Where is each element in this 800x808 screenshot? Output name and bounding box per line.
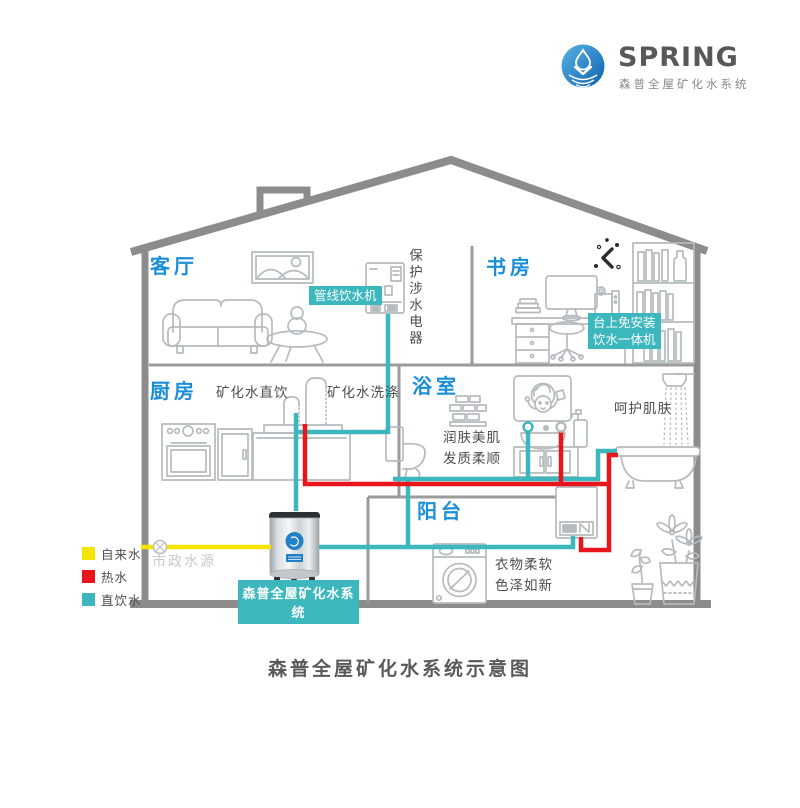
brand-wordmark: SPRING — [618, 42, 739, 73]
bathtub — [615, 447, 700, 488]
label-skin-line2: 发质柔顺 — [443, 449, 501, 470]
room-label-bath: 浴室 — [412, 370, 460, 399]
chip-countertop-line1: 台上免安装 — [593, 314, 656, 331]
legend-swatch-hot — [82, 570, 95, 583]
legend-label-hot: 热水 — [101, 567, 128, 586]
label-mineral-washing: 矿化水洗涤 — [327, 383, 400, 404]
office-chair — [550, 322, 584, 361]
label-laundry: 衣物柔软 色泽如新 — [495, 555, 553, 597]
label-skin-care: 润肤美肌 发质柔顺 — [443, 428, 501, 470]
legend-label-tap: 自来水 — [101, 544, 142, 563]
room-label-study: 书房 — [486, 251, 534, 280]
toilet — [386, 427, 425, 478]
label-laundry-line1: 衣物柔软 — [495, 555, 553, 576]
room-label-kitchen: 厨房 — [150, 375, 198, 404]
water-heater — [556, 487, 597, 538]
legend-swatch-tap — [82, 547, 95, 560]
brand-logo-icon — [562, 45, 605, 88]
chip-pipeline-dispenser: 管线饮水机 — [309, 286, 382, 305]
spring-water-system-diagram: SPRING 森普全屋矿化水系统 客厅 书房 厨房 浴室 阳台 管线饮水机 台上… — [0, 0, 800, 808]
room-label-living: 客厅 — [150, 250, 198, 279]
label-skin-line1: 润肤美肌 — [443, 428, 501, 449]
legend-row-hot: 热水 — [82, 570, 142, 583]
chip-countertop-machine: 台上免安装 饮水一体机 — [588, 313, 661, 349]
room-label-balcony: 阳台 — [417, 495, 465, 524]
mirror-cartoon — [514, 376, 571, 421]
sparkle-icon — [595, 239, 620, 269]
label-laundry-line2: 色泽如新 — [495, 576, 553, 597]
sofa — [163, 300, 272, 353]
living-room-furniture — [163, 252, 404, 362]
label-municipal-source: 市政水源 — [152, 551, 216, 571]
basin-faucet-knobs — [524, 423, 566, 432]
washing-machine — [433, 544, 486, 603]
label-mineral-drinking: 矿化水直饮 — [216, 383, 289, 404]
soap-dispenser — [572, 410, 587, 447]
small-potted-plant — [631, 550, 653, 604]
washing-faucet — [306, 378, 326, 425]
side-table — [267, 307, 327, 362]
kitchen-cabinet — [218, 429, 252, 480]
diagram-canvas — [0, 0, 800, 808]
legend-row-tap: 自来水 — [82, 547, 142, 560]
chip-countertop-line2: 饮水一体机 — [593, 331, 656, 348]
towel-shelf — [450, 396, 486, 426]
legend-swatch-drinking — [82, 593, 95, 606]
tank-banner: 森普全屋矿化水系统 — [238, 580, 359, 624]
bathroom-sink — [514, 433, 578, 477]
legend-row-drinking: 直饮水 — [82, 593, 142, 606]
label-protect-appliance: 保护涉水电器 — [403, 248, 424, 347]
pipe-legend: 自来水 热水 直饮水 — [82, 547, 142, 616]
brand-subtitle: 森普全屋矿化水系统 — [619, 76, 750, 92]
stove-oven — [162, 424, 215, 480]
diagram-caption: 森普全屋矿化水系统示意图 — [0, 654, 800, 681]
wall-picture — [252, 252, 313, 283]
tank-logo-icon — [286, 532, 304, 550]
legend-label-drinking: 直饮水 — [101, 590, 142, 609]
label-shower-care: 呵护肌肤 — [614, 399, 672, 420]
mineral-water-tank — [269, 512, 320, 584]
roof — [131, 160, 707, 252]
